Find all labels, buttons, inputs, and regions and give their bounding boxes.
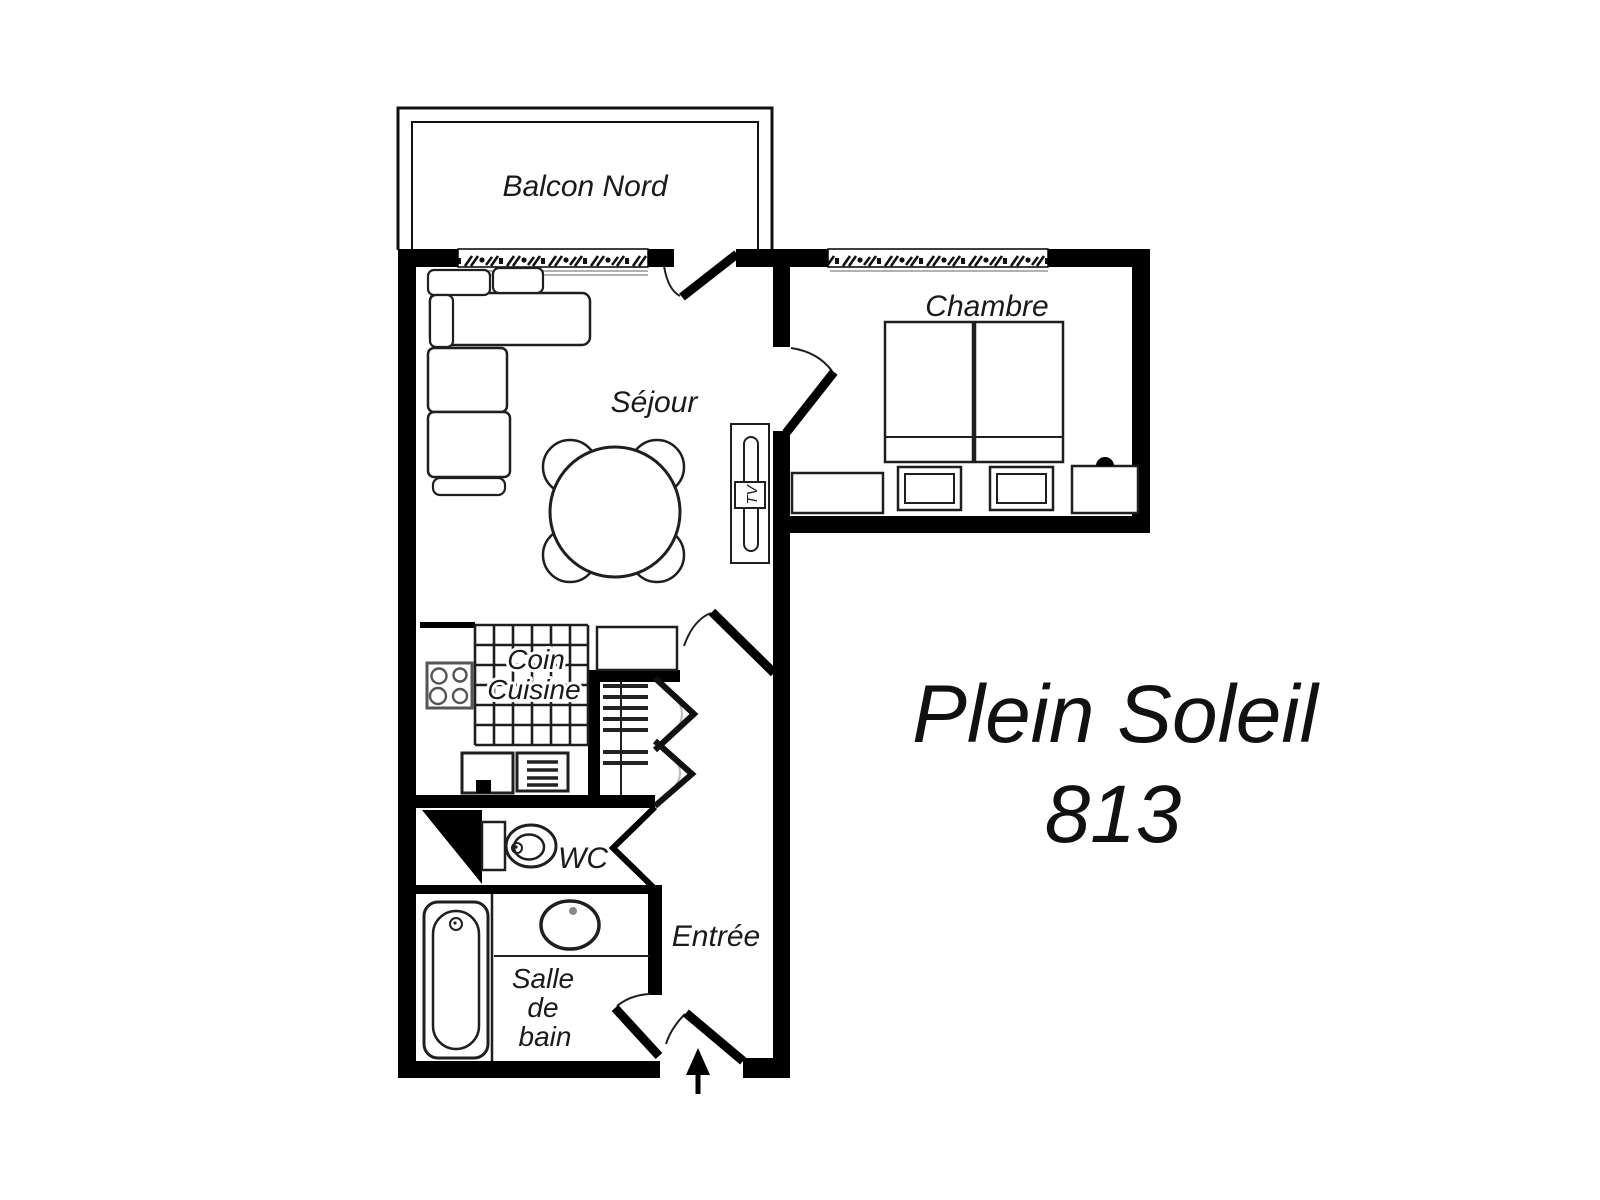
wc-duct-triangle (422, 810, 482, 884)
wall-segment (773, 431, 790, 516)
dining-table (550, 447, 680, 577)
floor-plan-svg: Balcon Nord (0, 0, 1600, 1200)
tv-unit: TV (731, 424, 769, 563)
plan-title-name: Plein Soleil (912, 669, 1320, 760)
window-living-room (458, 249, 648, 267)
room-label-entry: Entrée (672, 920, 760, 953)
entry-arrow (686, 1048, 710, 1094)
wc: WC (482, 822, 608, 875)
closet-door-fold (655, 741, 692, 806)
toilet-tank (482, 822, 505, 870)
lamp (1096, 457, 1114, 466)
wall-segment (588, 670, 600, 796)
room-label-bedroom: Chambre (925, 290, 1048, 323)
wall-segment (648, 885, 662, 995)
appliance-unit (517, 753, 568, 791)
hall-closet (597, 627, 694, 806)
bedroom-furniture (792, 322, 1138, 513)
kitchen: Coin Cuisine (427, 625, 588, 793)
wall-segment (773, 249, 790, 347)
dining-set (543, 440, 684, 582)
wall-segment (416, 885, 662, 894)
wc-door (613, 807, 655, 889)
balcony-door (664, 254, 737, 297)
bathroom: Salle de bain (424, 894, 650, 1061)
tall-cabinet (597, 627, 677, 670)
low-cabinet (792, 473, 883, 513)
room-label-living: Séjour (611, 386, 699, 419)
wall-segment (773, 516, 1150, 533)
floor-plan-image: Balcon Nord (0, 0, 1600, 1200)
wall-segment (416, 795, 655, 808)
room-label-bath-2: de (527, 992, 558, 1023)
wall-segment (420, 622, 475, 628)
room-label-kitchen-2: Cuisine (487, 674, 580, 705)
bed-right (975, 322, 1063, 462)
entrance-door (666, 1013, 743, 1061)
window-bedroom (828, 249, 1048, 267)
bedroom-door (786, 348, 834, 433)
room-label-kitchen-1: Coin (507, 644, 565, 675)
bathroom-door (615, 994, 659, 1056)
closet-shelves (603, 686, 648, 763)
wall-segment (398, 250, 416, 1078)
tv-label: TV (744, 483, 761, 504)
wall-segment (398, 249, 460, 267)
stove (427, 663, 472, 708)
room-label-wc: WC (558, 842, 608, 875)
closet-door-fold (655, 678, 694, 750)
nightstand (1072, 466, 1138, 513)
wall-segment (398, 1061, 660, 1078)
room-label-bath-3: bain (519, 1021, 572, 1052)
hallway-door (684, 612, 774, 673)
washbasin (494, 901, 650, 956)
plan-title-number: 813 (1045, 769, 1182, 860)
room-label-bath-1: Salle (512, 963, 574, 994)
wall-segment (773, 533, 790, 1062)
bed-left (885, 322, 973, 462)
bathtub (424, 902, 488, 1058)
wall-segment (743, 1058, 790, 1078)
sink-unit (462, 753, 513, 793)
room-label-balcony: Balcon Nord (502, 170, 668, 203)
wall-segment (588, 670, 680, 682)
plan-title: Plein Soleil 813 (912, 669, 1320, 860)
wall-segment (648, 249, 674, 267)
balcony: Balcon Nord (398, 108, 772, 250)
